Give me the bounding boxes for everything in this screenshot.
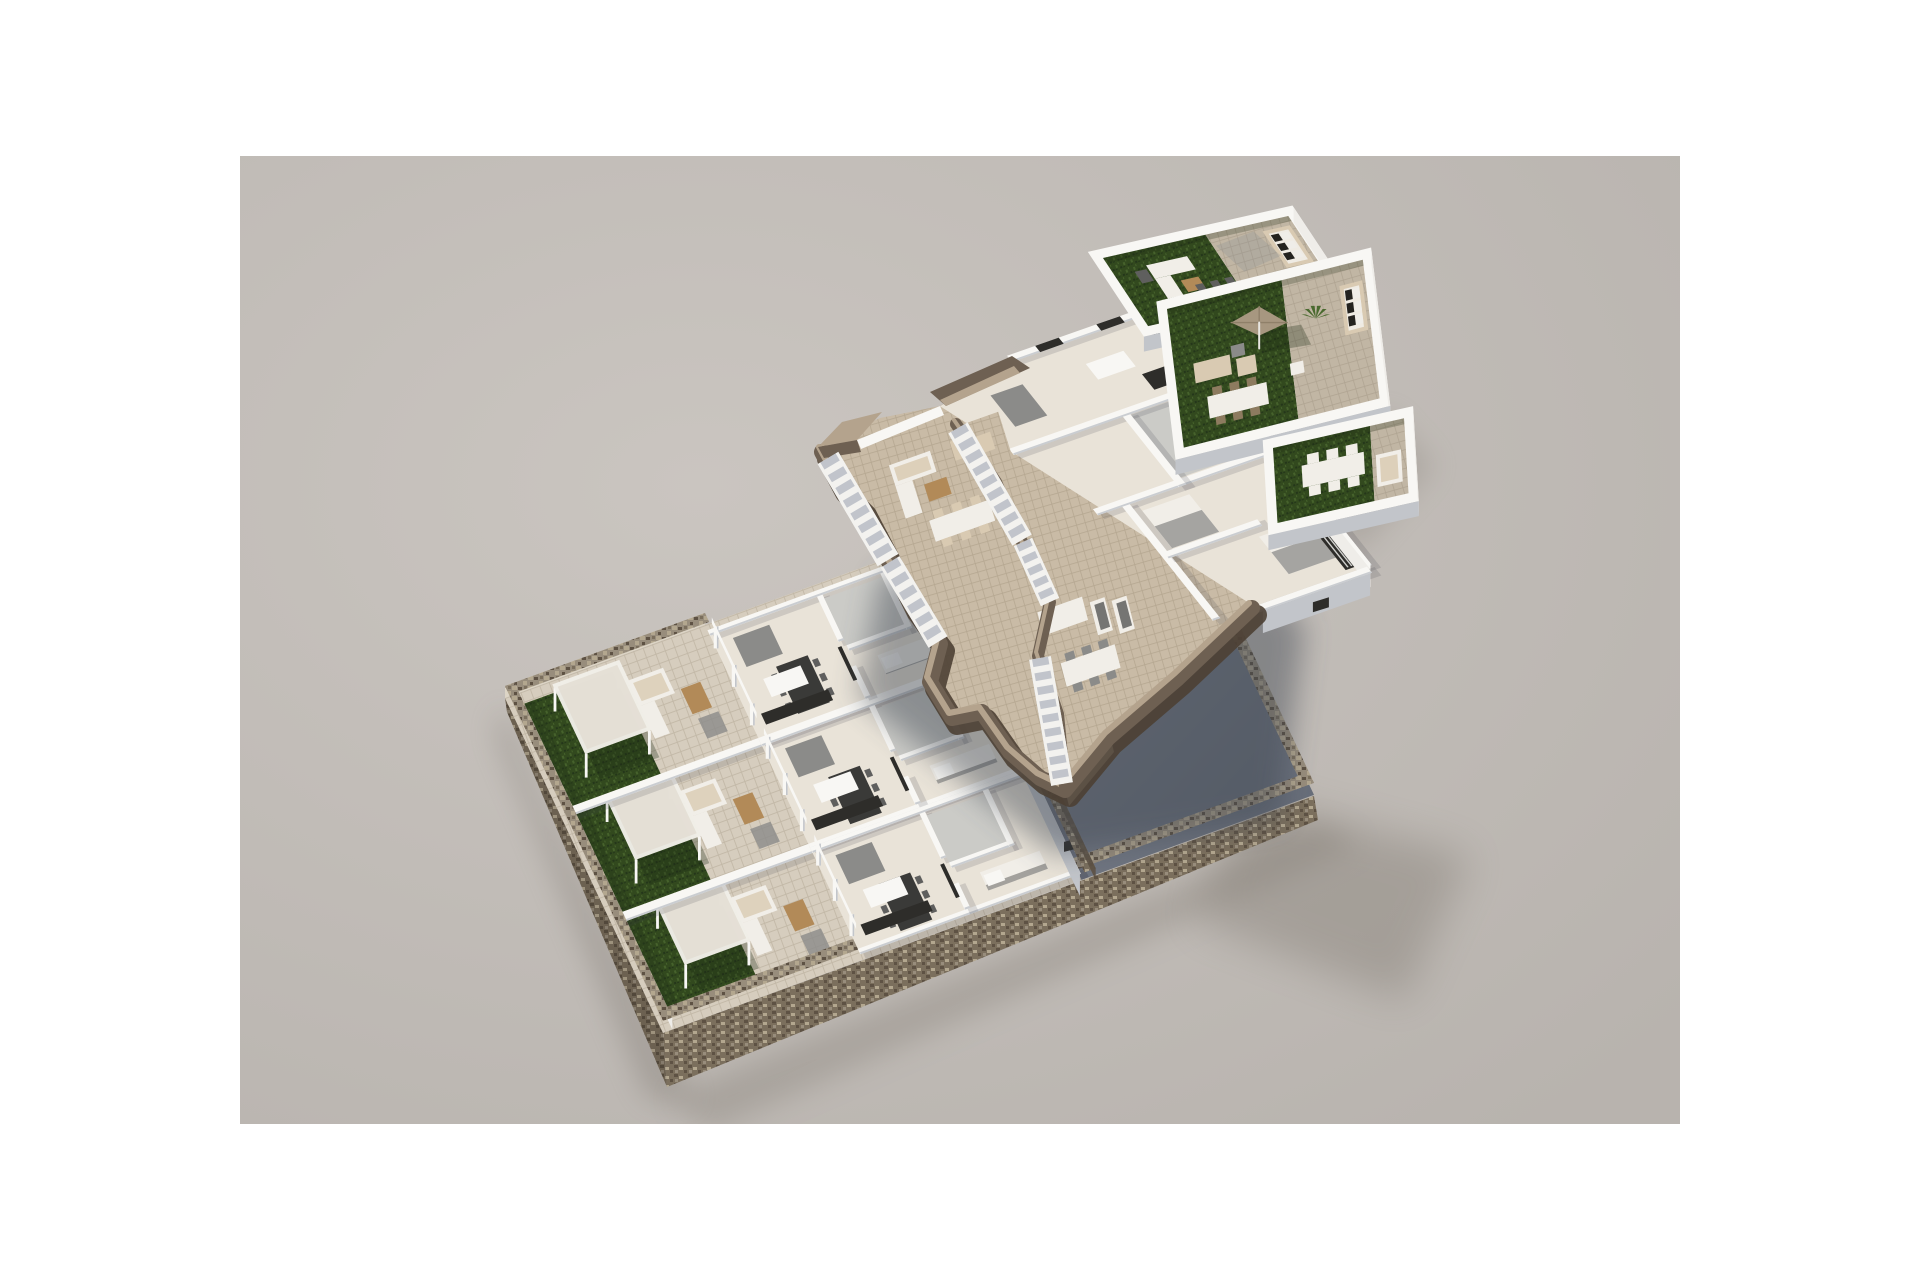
render-canvas [240,156,1680,1124]
page [0,0,1920,1280]
architectural-render [240,156,1680,1124]
